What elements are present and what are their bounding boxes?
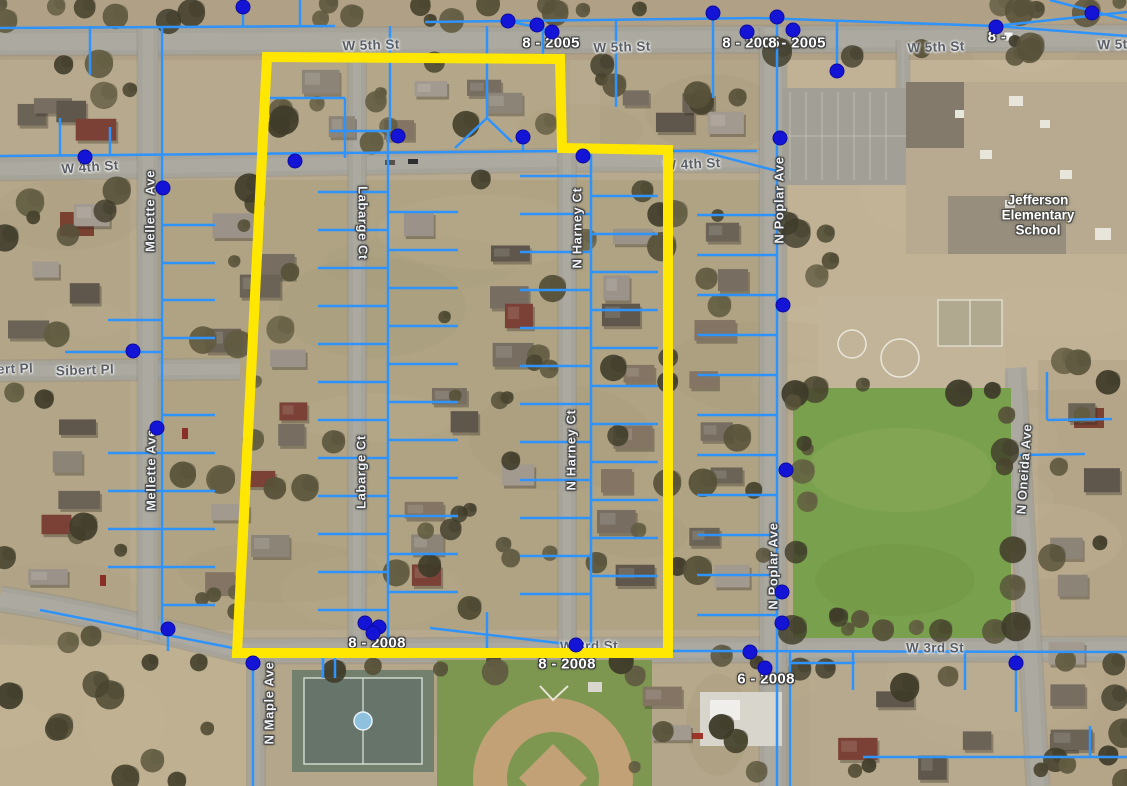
utility-node[interactable] bbox=[156, 181, 170, 195]
utility-node[interactable] bbox=[740, 25, 754, 39]
utility-node[interactable] bbox=[775, 616, 789, 630]
utility-node[interactable] bbox=[779, 463, 793, 477]
utility-node[interactable] bbox=[516, 130, 530, 144]
utility-node[interactable] bbox=[773, 131, 787, 145]
utility-node[interactable] bbox=[288, 154, 302, 168]
utility-node[interactable] bbox=[758, 661, 772, 675]
utility-node[interactable] bbox=[391, 129, 405, 143]
utility-node[interactable] bbox=[161, 622, 175, 636]
utility-node[interactable] bbox=[989, 20, 1003, 34]
utility-node[interactable] bbox=[530, 18, 544, 32]
overlay-svg bbox=[0, 0, 1127, 786]
utility-node[interactable] bbox=[786, 23, 800, 37]
utility-node[interactable] bbox=[770, 10, 784, 24]
utility-nodes-layer bbox=[78, 0, 1099, 675]
utility-node[interactable] bbox=[236, 0, 250, 14]
utility-node[interactable] bbox=[1085, 6, 1099, 20]
utility-node[interactable] bbox=[78, 150, 92, 164]
utility-node[interactable] bbox=[150, 421, 164, 435]
utility-node[interactable] bbox=[576, 149, 590, 163]
utility-node[interactable] bbox=[545, 25, 559, 39]
utility-node[interactable] bbox=[775, 585, 789, 599]
utility-node[interactable] bbox=[246, 656, 260, 670]
utility-node[interactable] bbox=[706, 6, 720, 20]
utility-node[interactable] bbox=[776, 298, 790, 312]
project-boundary[interactable] bbox=[237, 57, 668, 653]
utility-node[interactable] bbox=[126, 344, 140, 358]
utility-node[interactable] bbox=[1009, 656, 1023, 670]
utility-node[interactable] bbox=[830, 64, 844, 78]
utility-node[interactable] bbox=[366, 626, 380, 640]
utility-node[interactable] bbox=[569, 638, 583, 652]
map-viewport[interactable]: Jefferson Elementary School W 5th StW 5t… bbox=[0, 0, 1127, 786]
utility-node[interactable] bbox=[743, 645, 757, 659]
project-boundary-layer bbox=[237, 57, 668, 653]
utility-node[interactable] bbox=[501, 14, 515, 28]
